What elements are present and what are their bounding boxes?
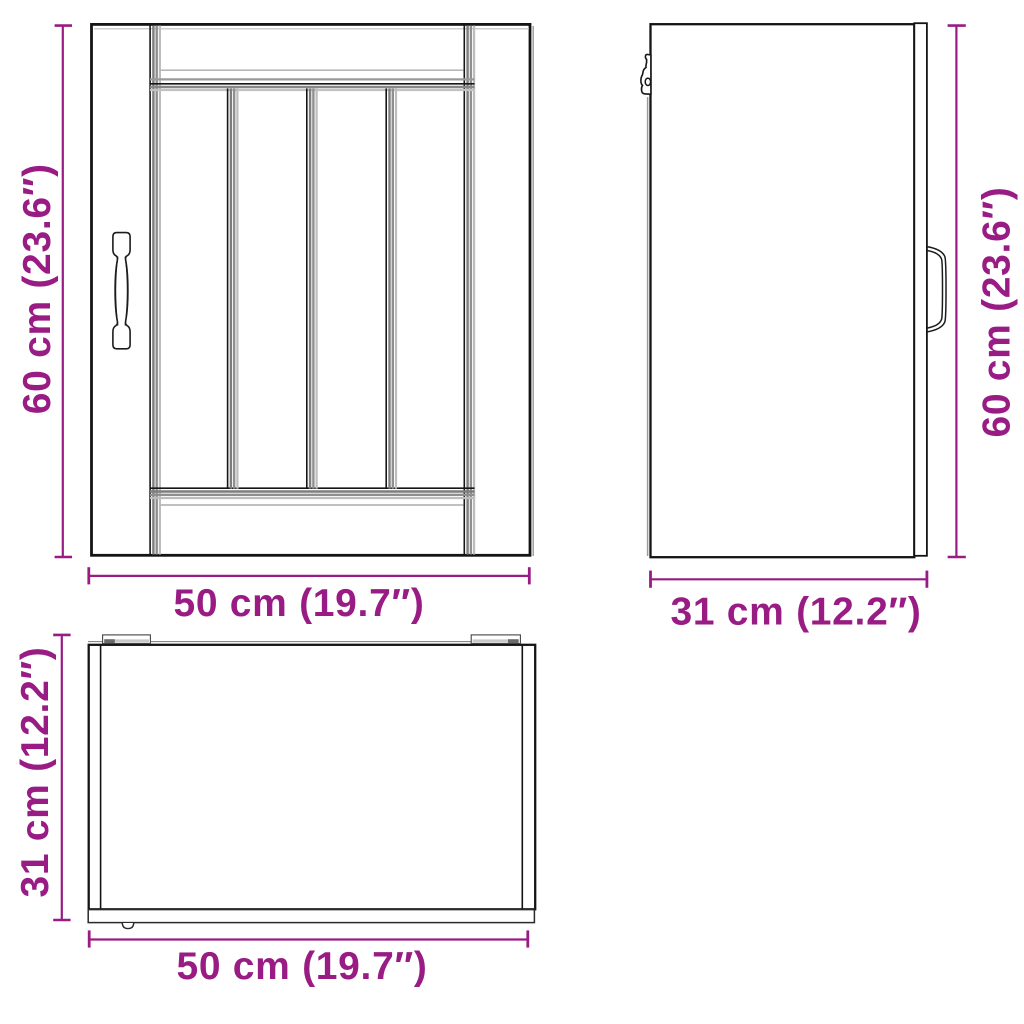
- svg-text:60 cm (23.6″): 60 cm (23.6″): [16, 163, 59, 414]
- svg-text:50 cm (19.7″): 50 cm (19.7″): [173, 582, 424, 625]
- svg-text:31 cm (12.2″): 31 cm (12.2″): [670, 590, 921, 633]
- svg-text:60 cm (23.6″): 60 cm (23.6″): [976, 186, 1019, 437]
- svg-text:50 cm (19.7″): 50 cm (19.7″): [176, 945, 427, 988]
- svg-text:31 cm (12.2″): 31 cm (12.2″): [14, 646, 57, 897]
